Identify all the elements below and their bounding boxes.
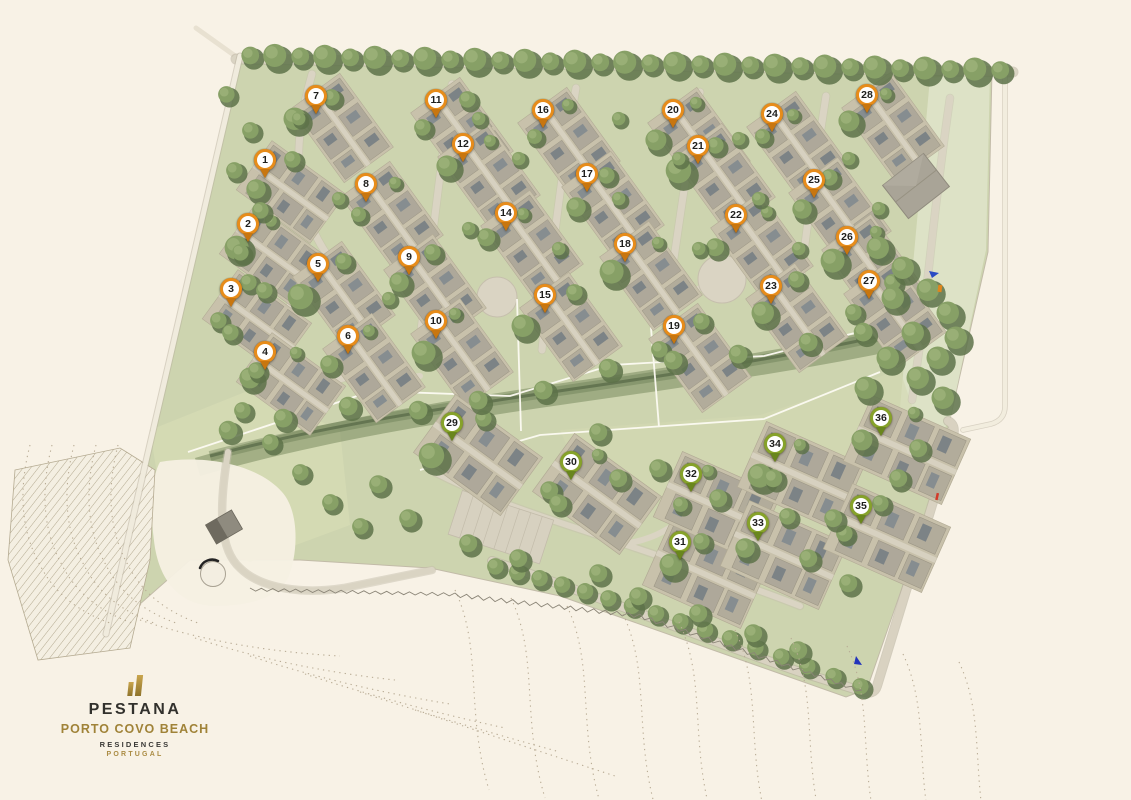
unit-number: 33 [752, 518, 764, 529]
unit-marker-14[interactable]: 14 [495, 202, 517, 224]
unit-marker-36[interactable]: 36 [870, 407, 892, 429]
unit-number: 11 [430, 95, 441, 106]
unit-marker-12[interactable]: 12 [452, 133, 474, 155]
unit-number: 17 [581, 169, 593, 180]
unit-number: 16 [537, 105, 549, 116]
unit-marker-23[interactable]: 23 [760, 275, 782, 297]
unit-number: 34 [769, 439, 781, 450]
unit-number: 18 [619, 239, 631, 250]
unit-marker-32[interactable]: 32 [680, 463, 702, 485]
unit-marker-34[interactable]: 34 [764, 433, 786, 455]
unit-number: 22 [730, 210, 742, 221]
unit-number: 35 [855, 501, 867, 512]
unit-marker-29[interactable]: 29 [441, 412, 463, 434]
unit-number: 31 [674, 537, 686, 548]
brand-subtitle: RESIDENCES [53, 740, 217, 749]
unit-marker-16[interactable]: 16 [532, 99, 554, 121]
unit-marker-9[interactable]: 9 [398, 246, 420, 268]
unit-number: 6 [345, 331, 351, 342]
unit-marker-35[interactable]: 35 [850, 495, 872, 517]
unit-number: 8 [363, 179, 369, 190]
unit-marker-27[interactable]: 27 [858, 270, 880, 292]
unit-number: 10 [430, 316, 442, 327]
unit-marker-25[interactable]: 25 [803, 169, 825, 191]
brand-name: PESTANA [53, 701, 217, 719]
unit-marker-3[interactable]: 3 [220, 278, 242, 300]
unit-number: 20 [667, 105, 679, 116]
unit-number: 15 [539, 290, 551, 301]
unit-marker-6[interactable]: 6 [337, 325, 359, 347]
unit-marker-18[interactable]: 18 [614, 233, 636, 255]
unit-number: 9 [406, 252, 412, 263]
unit-number: 4 [262, 347, 268, 358]
unit-marker-24[interactable]: 24 [761, 103, 783, 125]
unit-marker-5[interactable]: 5 [307, 253, 329, 275]
unit-marker-21[interactable]: 21 [687, 135, 709, 157]
unit-marker-4[interactable]: 4 [254, 341, 276, 363]
unit-marker-20[interactable]: 20 [662, 99, 684, 121]
unit-marker-10[interactable]: 10 [425, 310, 447, 332]
brand-logo: PESTANA PORTO COVO BEACH RESIDENCES PORT… [53, 668, 217, 758]
unit-marker-7[interactable]: 7 [305, 85, 327, 107]
unit-marker-28[interactable]: 28 [856, 84, 878, 106]
unit-marker-17[interactable]: 17 [576, 163, 598, 185]
brand-property: PORTO COVO BEACH [53, 722, 217, 736]
unit-marker-1[interactable]: 1 [254, 149, 276, 171]
unit-number: 14 [500, 208, 512, 219]
unit-number: 30 [565, 457, 577, 468]
unit-number: 3 [228, 284, 234, 295]
unit-number: 36 [875, 413, 887, 424]
unit-number: 25 [808, 175, 820, 186]
unit-number: 1 [262, 155, 268, 166]
unit-number: 19 [668, 321, 680, 332]
unit-marker-31[interactable]: 31 [669, 531, 691, 553]
unit-number: 7 [313, 91, 319, 102]
unit-number: 27 [863, 276, 875, 287]
unit-marker-8[interactable]: 8 [355, 173, 377, 195]
unit-number: 2 [245, 219, 251, 230]
brand-country: PORTUGAL [53, 751, 217, 758]
unit-marker-11[interactable]: 11 [425, 89, 447, 111]
unit-number: 28 [861, 90, 873, 101]
unit-marker-30[interactable]: 30 [560, 451, 582, 473]
unit-number: 24 [766, 109, 778, 120]
unit-marker-26[interactable]: 26 [836, 226, 858, 248]
unit-number: 21 [692, 141, 704, 152]
pestana-logo-icon [53, 668, 217, 696]
unit-number: 5 [315, 259, 321, 270]
site-plan-canvas: 1 2 3 4 5 6 7 8 9 10 11 12 14 15 16 [0, 0, 1131, 800]
unit-number: 32 [685, 469, 697, 480]
unit-marker-15[interactable]: 15 [534, 284, 556, 306]
unit-marker-2[interactable]: 2 [237, 213, 259, 235]
unit-number: 12 [457, 139, 469, 150]
unit-number: 29 [446, 418, 458, 429]
unit-number: 23 [765, 281, 777, 292]
unit-marker-33[interactable]: 33 [747, 512, 769, 534]
unit-marker-19[interactable]: 19 [663, 315, 685, 337]
unit-number: 26 [841, 232, 853, 243]
unit-marker-22[interactable]: 22 [725, 204, 747, 226]
